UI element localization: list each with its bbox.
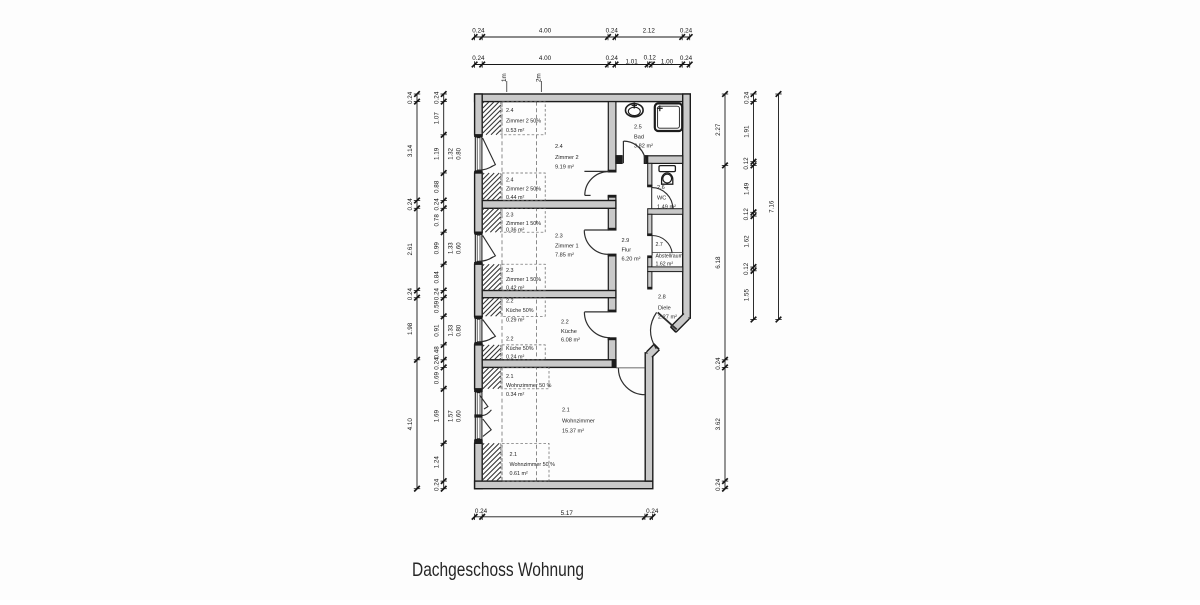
svg-text:0.12: 0.12 (743, 157, 750, 170)
svg-text:2.3: 2.3 (506, 213, 514, 219)
svg-text:Zimmer 2 50%: Zimmer 2 50% (506, 187, 541, 193)
svg-text:0.34 m²: 0.34 m² (506, 392, 524, 398)
svg-text:2.4: 2.4 (506, 178, 514, 184)
svg-text:0.36 m²: 0.36 m² (506, 228, 524, 234)
svg-text:Küche 50%: Küche 50% (506, 308, 534, 314)
svg-text:1.62 m²: 1.62 m² (656, 262, 674, 268)
svg-text:3.62: 3.62 (715, 418, 722, 431)
svg-text:0.88: 0.88 (434, 180, 441, 193)
svg-text:2.61: 2.61 (407, 243, 414, 256)
svg-text:0.42 m²: 0.42 m² (506, 286, 524, 292)
svg-text:Zimmer 1: Zimmer 1 (555, 244, 579, 250)
svg-text:0.24: 0.24 (434, 287, 441, 300)
svg-text:Zimmer 2: Zimmer 2 (555, 155, 579, 161)
svg-text:0.12: 0.12 (743, 208, 750, 221)
svg-text:1.98: 1.98 (407, 322, 414, 335)
svg-text:Flur: Flur (622, 248, 632, 254)
svg-text:0.24: 0.24 (434, 478, 441, 491)
svg-text:Zimmer 1 50%: Zimmer 1 50% (506, 277, 541, 283)
svg-text:1.91: 1.91 (743, 125, 750, 138)
svg-text:2.2: 2.2 (506, 299, 514, 305)
svg-text:0.24: 0.24 (646, 508, 659, 515)
svg-text:0.29 m²: 0.29 m² (506, 318, 524, 324)
svg-text:0.24: 0.24 (472, 27, 485, 34)
svg-text:0.24: 0.24 (434, 91, 441, 104)
svg-text:7.85 m²: 7.85 m² (555, 253, 574, 259)
svg-text:4.10: 4.10 (407, 418, 414, 431)
svg-text:2.27 m²: 2.27 m² (658, 315, 677, 321)
svg-text:1.69: 1.69 (434, 409, 441, 422)
svg-text:1.49: 1.49 (743, 182, 750, 195)
svg-text:2.2: 2.2 (506, 337, 514, 343)
svg-text:0.24 m²: 0.24 m² (506, 355, 524, 361)
svg-text:0.24: 0.24 (743, 91, 750, 104)
svg-text:Wohnzimmer 50 %: Wohnzimmer 50 % (506, 383, 552, 389)
svg-text:0.78: 0.78 (434, 214, 441, 227)
svg-text:0.60: 0.60 (457, 410, 463, 422)
svg-text:15.37 m²: 15.37 m² (562, 429, 584, 435)
svg-text:1.24: 1.24 (434, 456, 441, 469)
svg-text:0.24: 0.24 (407, 287, 414, 300)
svg-text:0.24: 0.24 (606, 27, 619, 34)
svg-text:0.80: 0.80 (457, 324, 463, 336)
svg-text:2.5: 2.5 (634, 125, 642, 131)
svg-text:1.00: 1.00 (661, 59, 674, 66)
svg-text:0.24: 0.24 (715, 357, 722, 370)
svg-text:2.3: 2.3 (506, 268, 514, 274)
svg-text:0.59: 0.59 (434, 300, 441, 313)
svg-text:Abstellraum: Abstellraum (656, 254, 683, 260)
svg-text:4.00: 4.00 (539, 55, 552, 62)
svg-text:0.53 m²: 0.53 m² (506, 128, 524, 134)
svg-text:3.82 m²: 3.82 m² (634, 144, 653, 150)
svg-text:5.17: 5.17 (561, 510, 574, 517)
svg-text:0.61 m²: 0.61 m² (510, 471, 528, 477)
svg-text:2.2: 2.2 (561, 320, 569, 326)
svg-text:1.55: 1.55 (743, 288, 750, 301)
svg-text:1m: 1m (501, 73, 508, 82)
svg-text:0.60: 0.60 (457, 242, 463, 254)
svg-text:0.80: 0.80 (457, 147, 463, 159)
svg-text:0.24: 0.24 (606, 55, 619, 62)
svg-text:0.44 m²: 0.44 m² (506, 195, 524, 201)
svg-text:0.24: 0.24 (407, 91, 414, 104)
svg-text:Zimmer 2 50%: Zimmer 2 50% (506, 119, 541, 125)
svg-text:6.08 m²: 6.08 m² (561, 338, 580, 344)
svg-text:0.48: 0.48 (434, 346, 441, 359)
svg-text:WC: WC (657, 196, 666, 202)
svg-text:Bad: Bad (634, 135, 644, 141)
svg-text:0.24: 0.24 (472, 55, 485, 62)
svg-text:Dachgeschoss Wohnung: Dachgeschoss Wohnung (412, 559, 584, 581)
svg-text:3.14: 3.14 (407, 144, 414, 157)
svg-text:2.1: 2.1 (510, 452, 518, 458)
svg-text:Wohnzimmer: Wohnzimmer (562, 419, 595, 425)
svg-text:2.7: 2.7 (656, 242, 663, 248)
svg-text:2.3: 2.3 (555, 234, 563, 240)
svg-text:Diele: Diele (658, 306, 671, 312)
svg-text:6.18: 6.18 (715, 256, 722, 269)
svg-text:2.1: 2.1 (506, 374, 514, 380)
svg-text:0.24: 0.24 (715, 478, 722, 491)
svg-text:0.91: 0.91 (434, 324, 441, 337)
svg-text:1.32: 1.32 (449, 147, 455, 159)
svg-text:0.24: 0.24 (680, 27, 693, 34)
svg-text:2.9: 2.9 (622, 238, 630, 244)
svg-text:1.57: 1.57 (449, 410, 455, 422)
svg-text:Zimmer 1 50%: Zimmer 1 50% (506, 221, 541, 227)
svg-text:2.12: 2.12 (643, 27, 656, 34)
svg-text:1.33: 1.33 (449, 324, 455, 336)
svg-text:0.12: 0.12 (743, 262, 750, 275)
svg-text:0.24: 0.24 (407, 198, 414, 211)
svg-text:0.84: 0.84 (434, 271, 441, 284)
svg-text:0.24: 0.24 (680, 55, 693, 62)
svg-text:2m: 2m (535, 73, 542, 82)
svg-text:1.01: 1.01 (625, 59, 638, 66)
svg-text:Küche: Küche (561, 329, 577, 335)
svg-text:7.16: 7.16 (768, 200, 775, 213)
svg-text:0.99: 0.99 (434, 242, 441, 255)
svg-text:2.4: 2.4 (555, 144, 563, 150)
svg-text:6.20 m²: 6.20 m² (622, 257, 641, 263)
svg-text:1.07: 1.07 (434, 112, 441, 125)
svg-text:0.69: 0.69 (434, 371, 441, 384)
svg-text:1.49 m²: 1.49 m² (657, 205, 676, 211)
svg-text:2.8: 2.8 (658, 295, 666, 301)
svg-text:1.19: 1.19 (434, 147, 441, 160)
svg-text:2.4: 2.4 (506, 108, 514, 114)
svg-text:0.24: 0.24 (434, 198, 441, 211)
svg-text:Küche 50%: Küche 50% (506, 346, 534, 352)
svg-text:2.6: 2.6 (657, 185, 665, 191)
svg-text:9.19 m²: 9.19 m² (555, 165, 574, 171)
svg-text:0.12: 0.12 (644, 55, 657, 62)
svg-text:2.27: 2.27 (715, 123, 722, 136)
svg-text:Wohnzimmer 50 %: Wohnzimmer 50 % (510, 462, 556, 468)
svg-text:1.62: 1.62 (743, 235, 750, 248)
svg-text:4.00: 4.00 (539, 27, 552, 34)
svg-text:1.33: 1.33 (449, 242, 455, 254)
svg-text:0.24: 0.24 (434, 357, 441, 370)
svg-text:0.24: 0.24 (475, 508, 488, 515)
svg-text:2.1: 2.1 (562, 408, 570, 414)
